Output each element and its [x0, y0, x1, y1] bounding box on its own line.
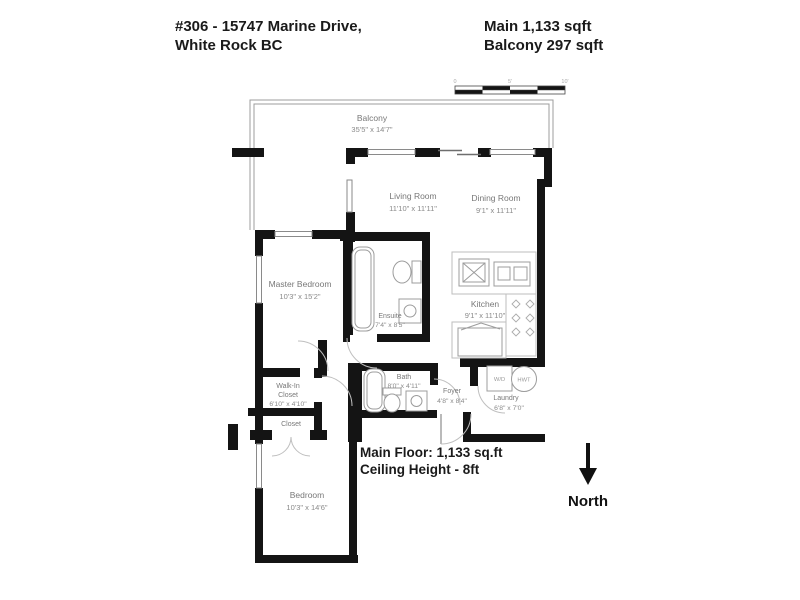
plan-notes: Main Floor: 1,133 sq.ft Ceiling Height -…	[360, 445, 503, 477]
door-arc-bedroom-right	[291, 437, 310, 456]
room-dims-dining: 9'1" x 11'11"	[476, 206, 516, 215]
room-dims-ensuite: 7'4" x 8'5"	[375, 322, 405, 329]
room-label-foyer: Foyer	[443, 388, 462, 395]
scale-tick-0: 0	[453, 79, 456, 85]
room-dims-bedroom: 10'3" x 14'6"	[286, 503, 327, 512]
room-dims-laundry: 6'8" x 7'0"	[494, 405, 524, 412]
room-dims-walkin: 6'10" x 4'10"	[269, 401, 307, 408]
window-master-balcony	[275, 232, 312, 237]
room-dims-bath: 8'0" x 4'11"	[388, 383, 422, 390]
window-living-balcony	[368, 150, 415, 155]
kitchen-sink-icon	[459, 259, 489, 286]
hot-water-tank-label: HWT	[517, 378, 531, 384]
scale-tick-5: 5'	[508, 79, 512, 85]
fridge-icon	[458, 323, 502, 356]
area-main: Main 1,133 sqft	[484, 18, 592, 35]
room-label-bath: Bath	[397, 374, 412, 381]
room-label-closet: Closet	[281, 421, 301, 428]
room-label-master: Master Bedroom	[269, 279, 332, 289]
floor-plan-page: #306 - 15747 Marine Drive, White Rock BC…	[0, 0, 800, 600]
washer-dryer-label: W/D	[494, 377, 505, 383]
window-bedroom	[257, 444, 262, 488]
header: #306 - 15747 Marine Drive, White Rock BC…	[175, 18, 603, 54]
laundry-fixtures: W/D HWT	[487, 366, 537, 392]
room-dims-foyer: 4'8" x 8'4"	[437, 398, 467, 405]
window-living-west	[347, 180, 352, 212]
kitchen-counter-right	[506, 294, 536, 356]
room-dims-living: 11'10" x 11'11"	[389, 204, 437, 213]
sliding-door-balcony	[438, 151, 481, 155]
bath-fixtures	[364, 369, 427, 412]
room-label-walkin-2: Closet	[278, 392, 298, 399]
room-label-walkin-1: Walk-In	[276, 383, 300, 390]
ceiling-height-note: Ceiling Height - 8ft	[360, 462, 480, 477]
stove-icon	[494, 262, 530, 286]
toilet-icon	[393, 261, 421, 283]
address-line2: White Rock BC	[175, 37, 283, 54]
room-dims-balcony: 35'5" x 14'7"	[351, 125, 392, 134]
room-label-bedroom: Bedroom	[290, 490, 325, 500]
area-balcony: Balcony 297 sqft	[484, 37, 603, 54]
counter-tile-diamonds	[512, 300, 534, 336]
scale-bar: 0 5' 10'	[453, 79, 568, 94]
door-arc-bedroom-left	[272, 437, 291, 456]
sink-icon	[399, 299, 421, 323]
scale-tick-10: 10'	[561, 79, 568, 85]
door-arc-walkin-closet	[322, 376, 352, 406]
floor-plan-canvas: #306 - 15747 Marine Drive, White Rock BC…	[0, 0, 800, 600]
north-arrowhead-icon	[579, 468, 597, 485]
bathtub-icon	[364, 369, 385, 412]
room-label-laundry: Laundry	[493, 395, 519, 402]
main-floor-area-note: Main Floor: 1,133 sq.ft	[360, 445, 503, 460]
room-label-ensuite: Ensuite	[378, 313, 401, 320]
room-dims-master: 10'3" x 15'2"	[279, 292, 320, 301]
toilet-icon	[383, 388, 401, 412]
room-dims-kitchen: 9'1" x 11'10"	[465, 311, 506, 320]
sink-icon	[406, 391, 427, 411]
north-compass: North	[568, 443, 608, 510]
room-label-living: Living Room	[389, 191, 436, 201]
window-master-side	[257, 256, 262, 303]
window-dining-balcony	[490, 150, 535, 155]
room-label-kitchen: Kitchen	[471, 299, 500, 309]
room-label-balcony: Balcony	[357, 113, 388, 123]
north-label: North	[568, 493, 608, 510]
room-label-dining: Dining Room	[471, 193, 520, 203]
address-line1: #306 - 15747 Marine Drive,	[175, 18, 362, 35]
bathtub-icon	[352, 247, 374, 331]
